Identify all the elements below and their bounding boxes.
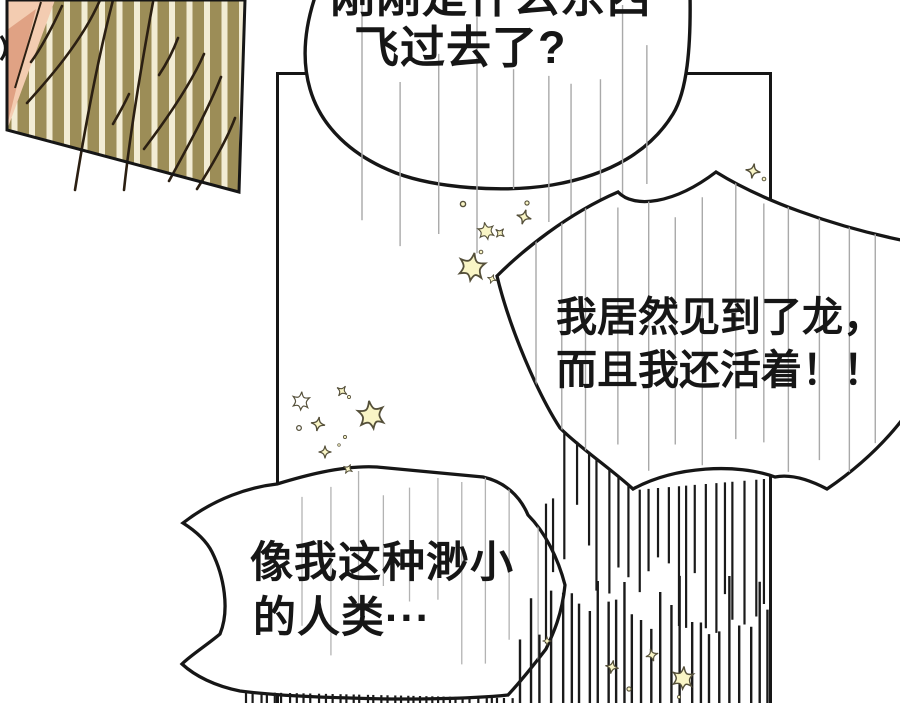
bubble-top-text-line1: 刚刚是什么东西 — [330, 0, 652, 20]
bubble-bottom-text-line2: 的人类··· — [253, 596, 431, 641]
star-icon — [492, 225, 508, 241]
star-icon — [477, 221, 495, 241]
star-icon — [319, 446, 332, 459]
sparkle-dot — [762, 177, 766, 181]
sparkle-dot — [343, 435, 346, 438]
star-icon — [515, 208, 533, 226]
star-icon — [310, 416, 327, 433]
bubble-top-text-line2: 飞过去了? — [354, 24, 567, 71]
bubble-mid-text-line1: 我居然见到了龙， — [556, 296, 884, 339]
star-icon — [457, 251, 486, 283]
edge-bump — [1, 36, 6, 60]
hair-panel — [1, 0, 245, 192]
comic-page: 刚刚是什么东西 飞过去了? 我居然见到了龙， 而且我还活着！！ 像我这种渺小 的… — [0, 0, 900, 703]
star-icon — [357, 399, 385, 430]
bubble-mid-text-line2: 而且我还活着！！ — [556, 349, 884, 392]
sparkle-dot — [338, 444, 341, 447]
sparkle-dot — [460, 201, 465, 206]
star-icon — [604, 659, 620, 675]
sparkle-dot — [347, 395, 350, 398]
sparkle-dot — [627, 687, 631, 691]
bubble-bottom-text-line1: 像我这种渺小 — [250, 541, 514, 586]
star-icon — [672, 666, 694, 690]
sparkle-dot — [677, 695, 680, 698]
star-icon — [744, 162, 761, 179]
sparkle-dot — [297, 426, 302, 431]
sparkle-dot — [525, 201, 529, 205]
star-icon — [292, 391, 310, 411]
sparkle-dot — [479, 250, 483, 254]
